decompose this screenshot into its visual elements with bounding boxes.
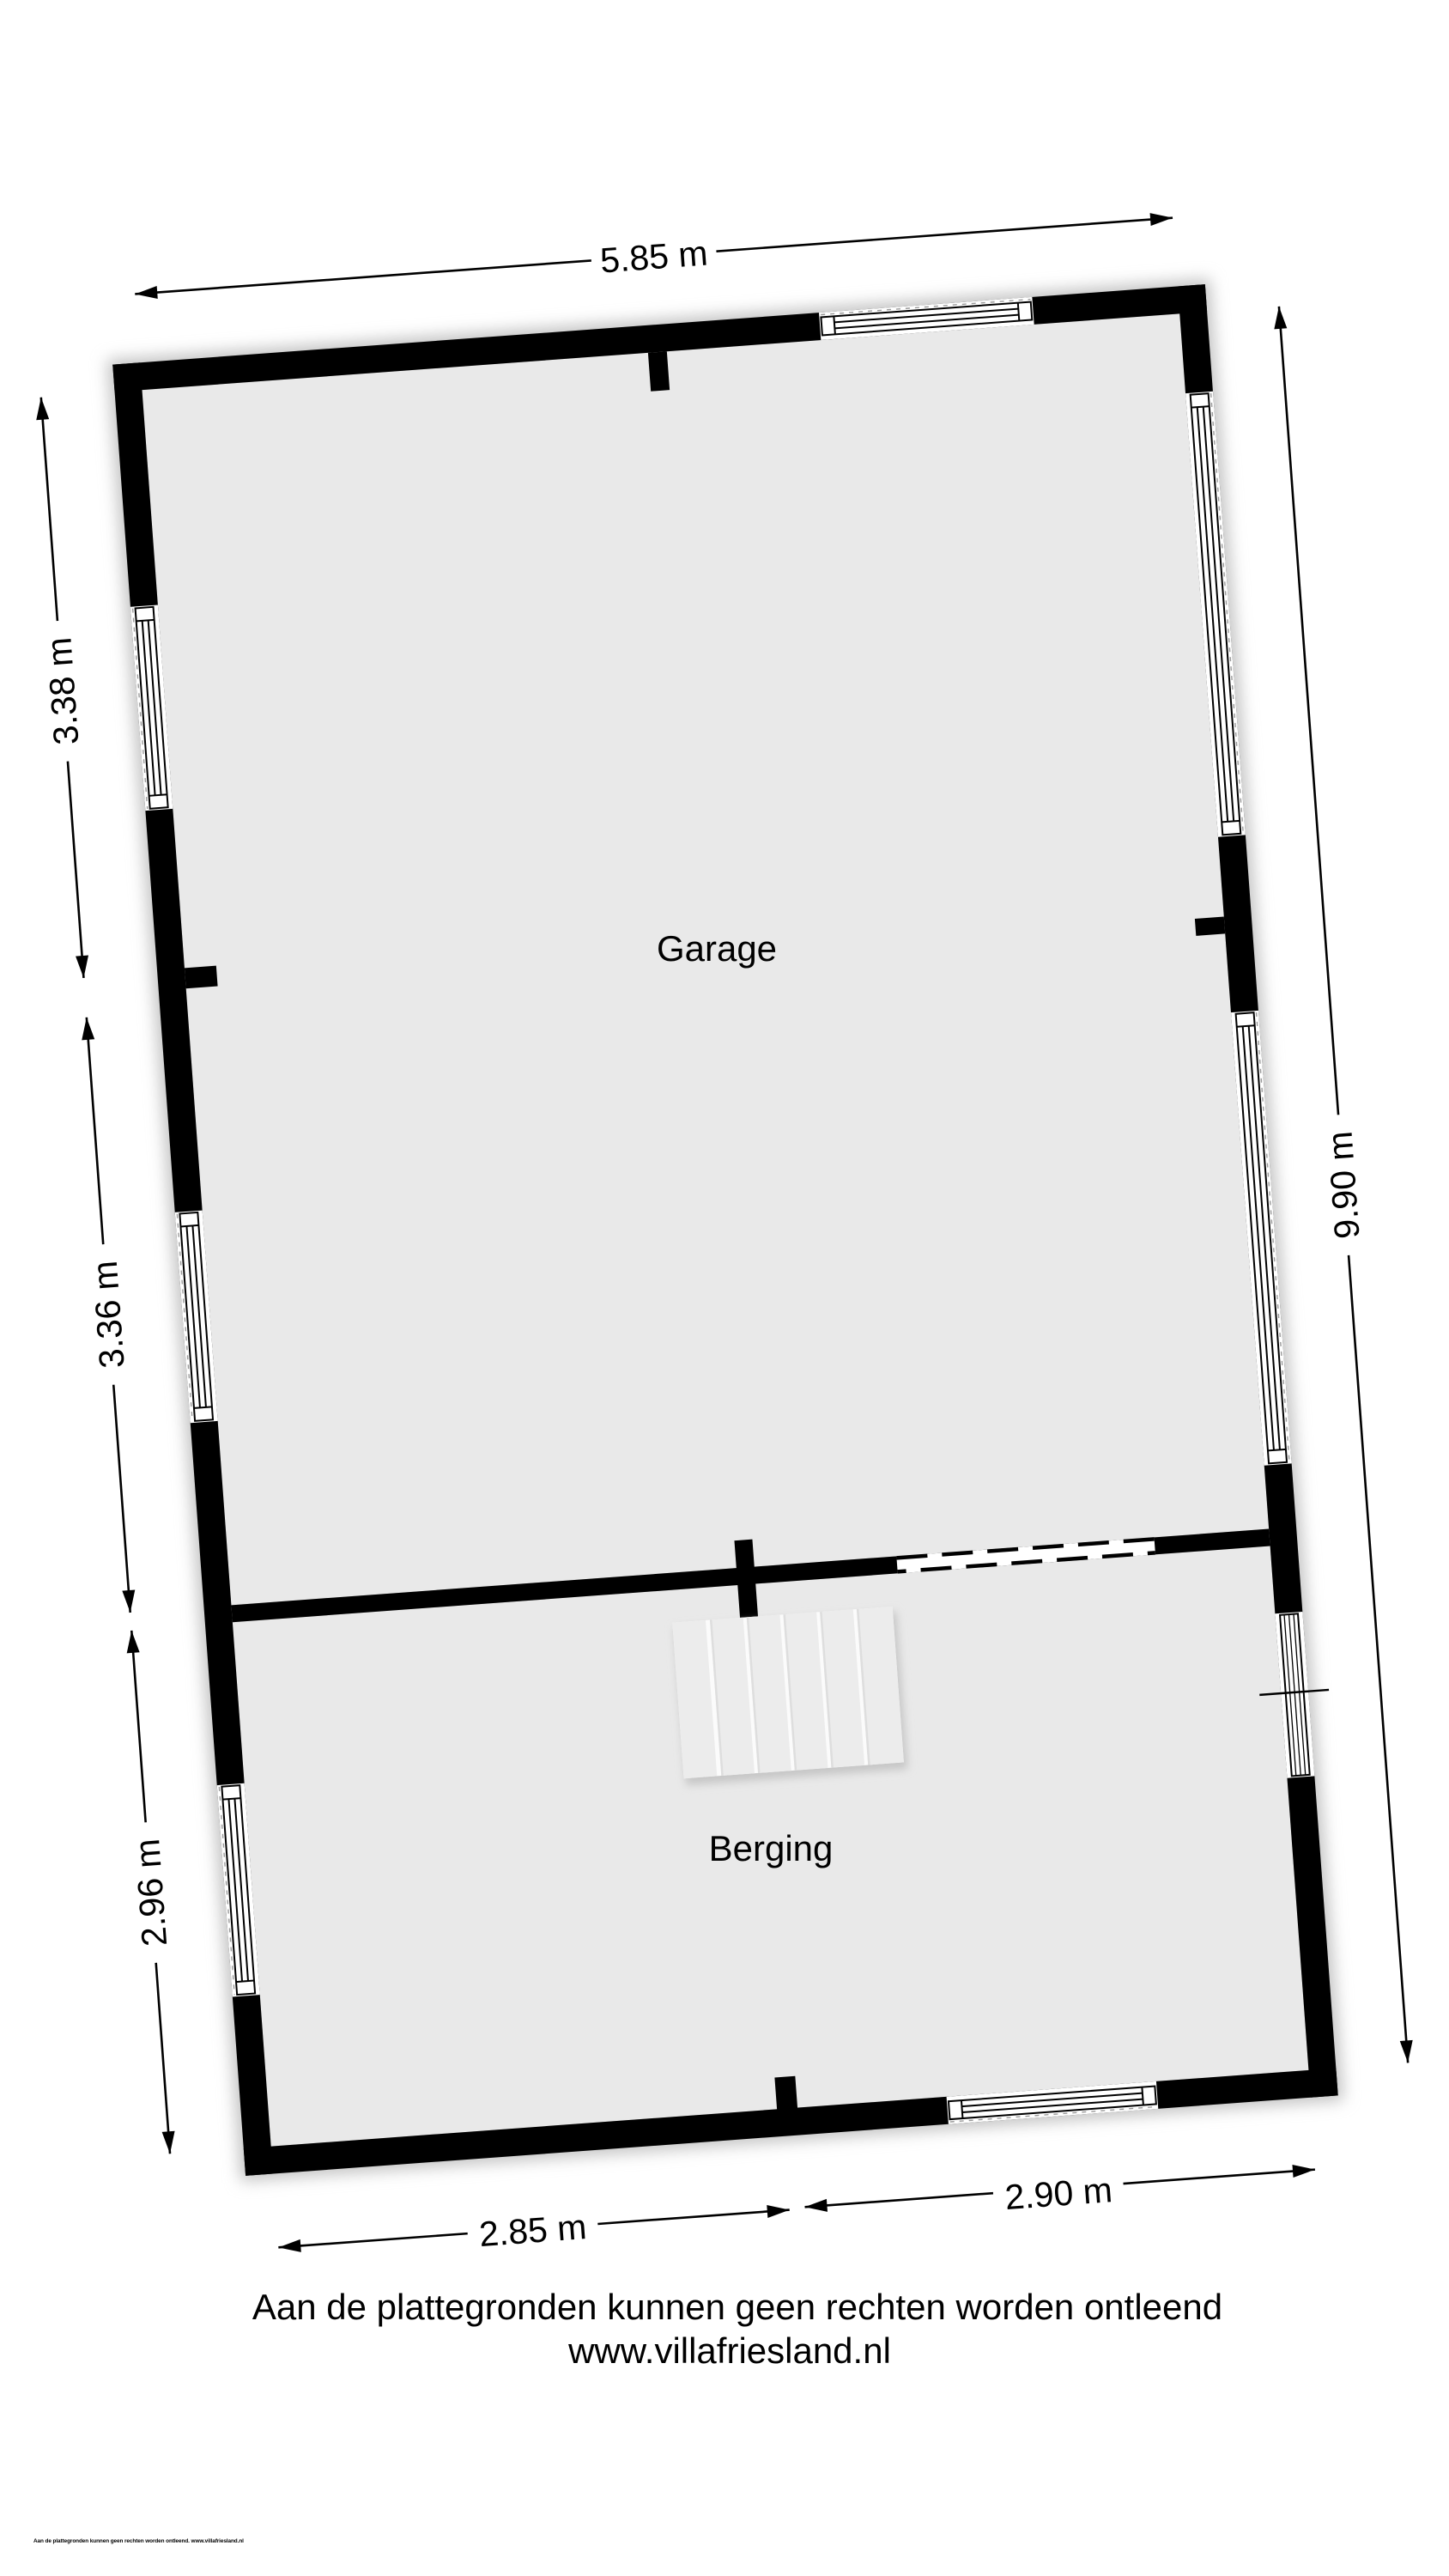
svg-text:2.90 m: 2.90 m xyxy=(1003,2170,1113,2217)
svg-text:Aan de plattegronden kunnen ge: Aan de plattegronden kunnen geen rechten… xyxy=(33,2538,244,2544)
svg-text:3.36 m: 3.36 m xyxy=(85,1260,132,1370)
svg-text:Aan de plattegronden kunnen ge: Aan de plattegronden kunnen geen rechten… xyxy=(252,2287,1222,2327)
svg-text:9.90 m: 9.90 m xyxy=(1320,1130,1367,1240)
svg-text:2.85 m: 2.85 m xyxy=(477,2207,587,2254)
svg-text:Garage: Garage xyxy=(657,928,777,969)
svg-text:2.96 m: 2.96 m xyxy=(127,1838,174,1947)
svg-text:Berging: Berging xyxy=(709,1828,834,1868)
svg-text:3.38 m: 3.38 m xyxy=(39,636,86,746)
svg-text:5.85 m: 5.85 m xyxy=(599,234,709,281)
svg-text:www.villafriesland.nl: www.villafriesland.nl xyxy=(567,2330,891,2371)
